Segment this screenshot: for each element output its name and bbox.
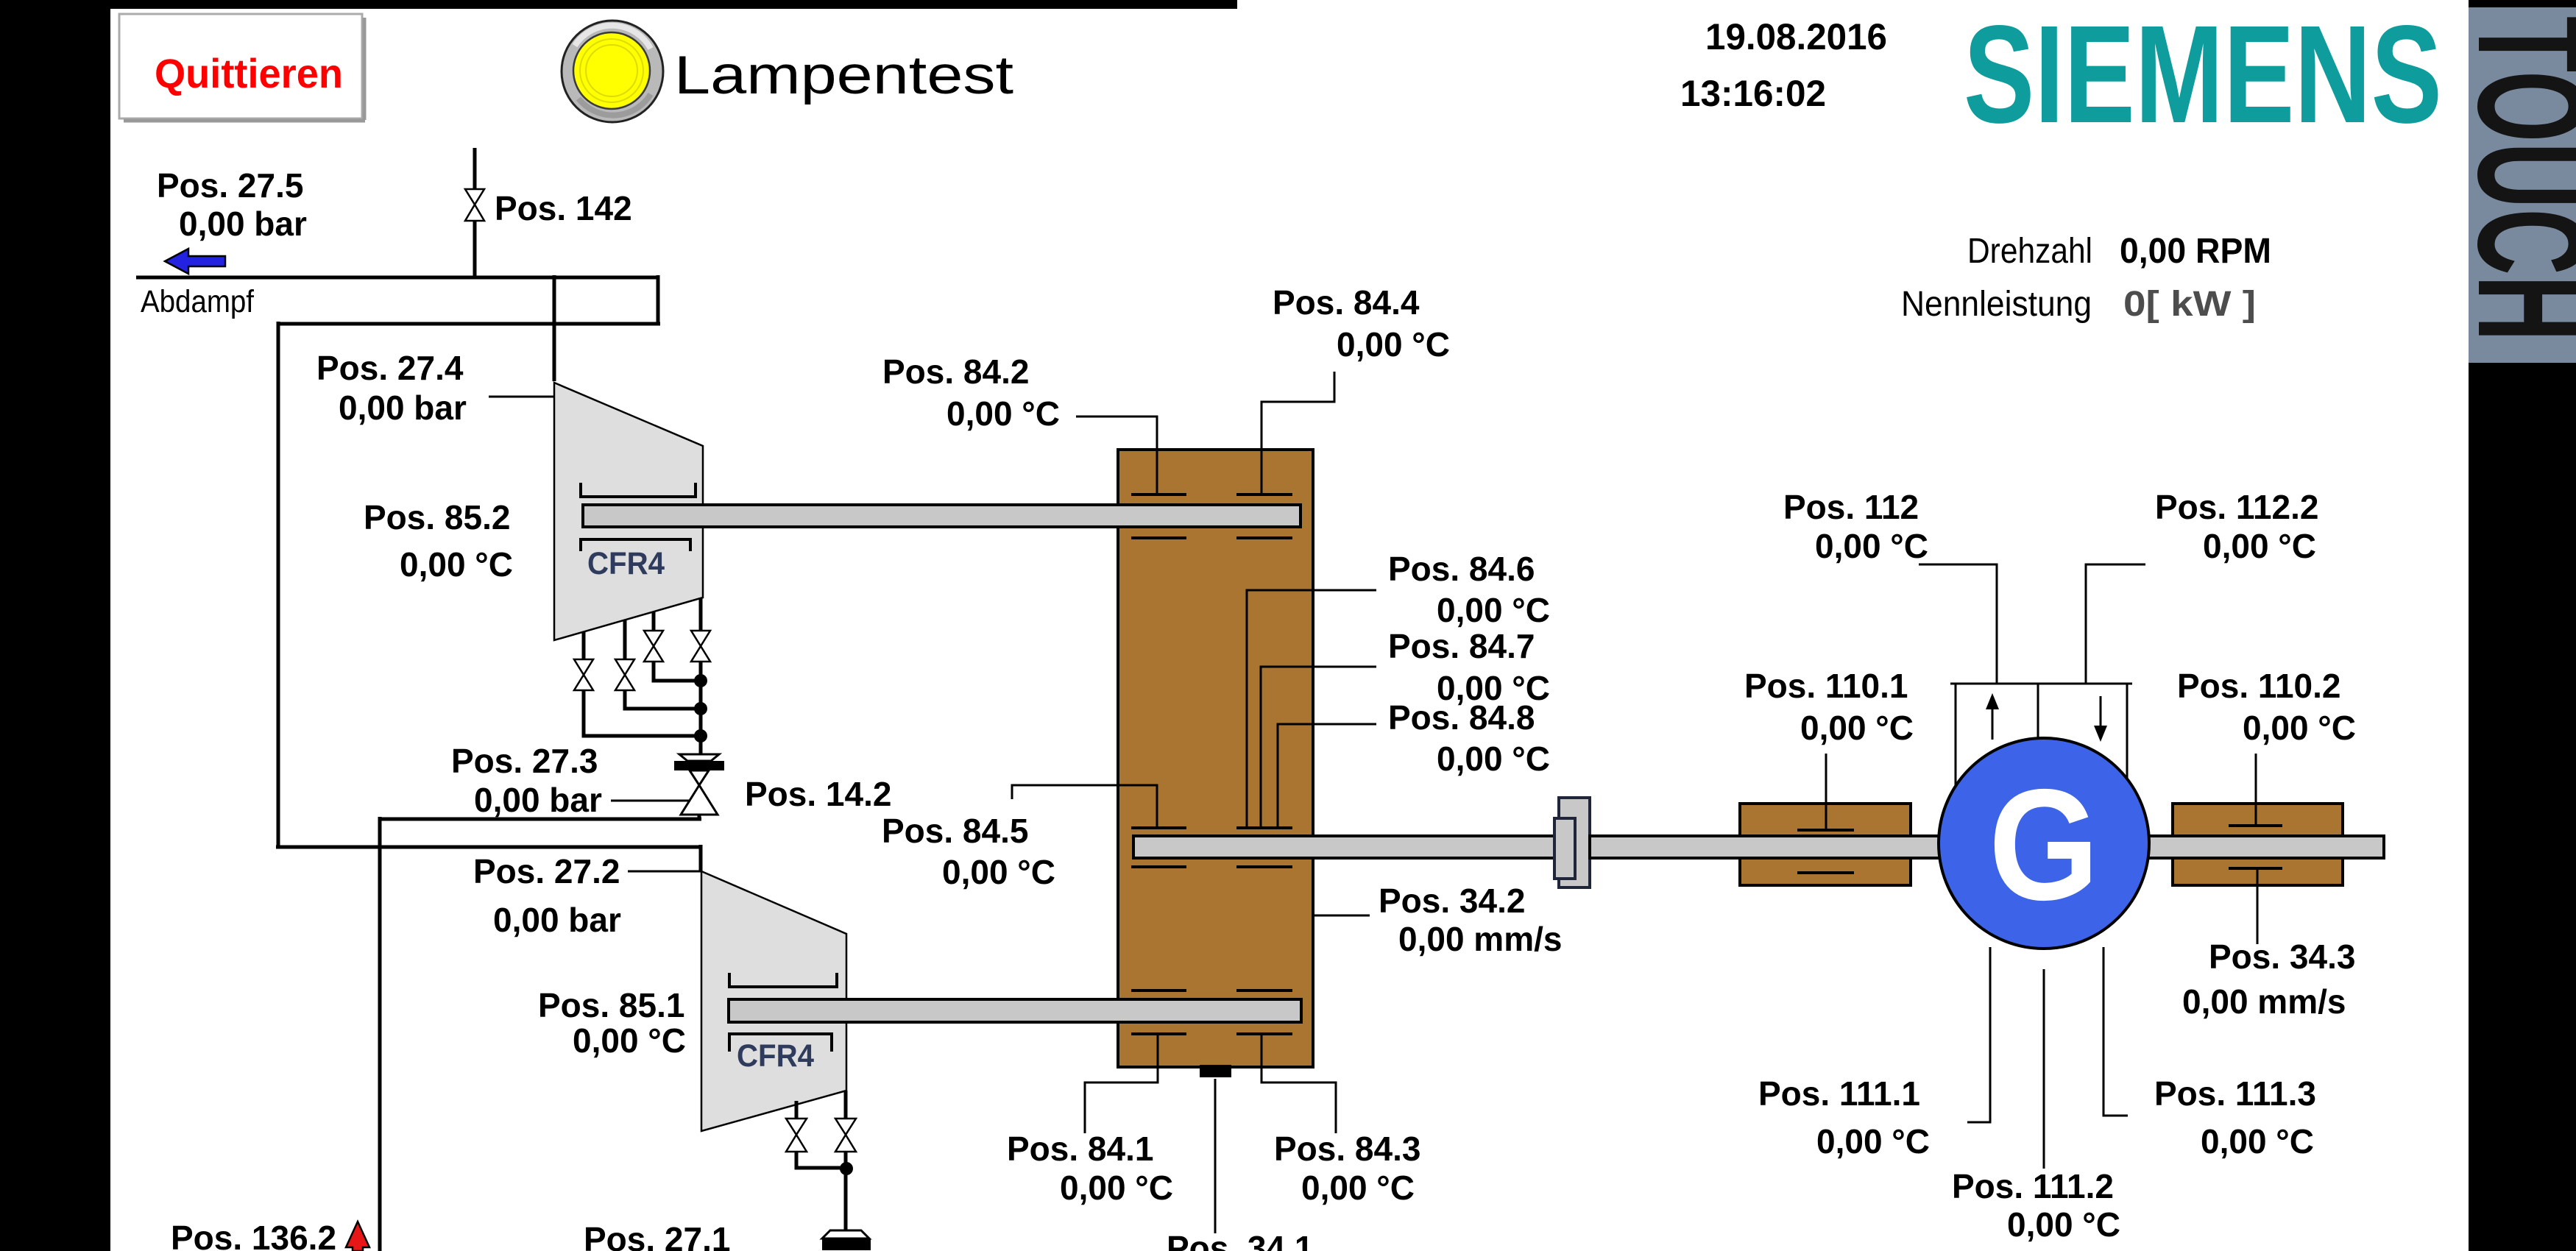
svg-text:Pos. 111.1: Pos. 111.1: [1758, 1074, 1920, 1113]
svg-text:Pos. 34.3: Pos. 34.3: [2209, 938, 2355, 976]
svg-text:Pos. 112.2: Pos. 112.2: [2155, 488, 2319, 526]
svg-text:Pos. 110.1: Pos. 110.1: [1744, 667, 1908, 705]
svg-text:Pos. 84.2: Pos. 84.2: [882, 352, 1029, 391]
svg-text:0,00 °C: 0,00 °C: [2243, 709, 2356, 747]
svg-text:0,00 °C: 0,00 °C: [2201, 1122, 2314, 1160]
svg-text:Nennleistung: Nennleistung: [1901, 285, 2092, 324]
svg-text:0,00 bar: 0,00 bar: [493, 901, 621, 939]
svg-text:Pos. 111.3: Pos. 111.3: [2154, 1074, 2316, 1113]
svg-text:0,00 °C: 0,00 °C: [1301, 1169, 1415, 1207]
svg-text:0,00 mm/s: 0,00 mm/s: [1398, 920, 1562, 958]
svg-text:0,00 °C: 0,00 °C: [946, 394, 1060, 433]
svg-text:Pos. 142: Pos. 142: [495, 189, 632, 227]
svg-text:Pos. 84.7: Pos. 84.7: [1388, 627, 1535, 665]
svg-text:Abdampf: Abdampf: [141, 284, 255, 319]
svg-text:Pos. 34.1: Pos. 34.1: [1167, 1229, 1313, 1251]
svg-text:Pos. 84.3: Pos. 84.3: [1274, 1130, 1420, 1168]
svg-text:Pos. 84.4: Pos. 84.4: [1273, 283, 1420, 322]
svg-text:CFR4: CFR4: [737, 1038, 814, 1074]
svg-text:0,00 bar: 0,00 bar: [339, 389, 467, 427]
svg-text:13:16:02: 13:16:02: [1680, 73, 1826, 114]
svg-text:G: G: [1989, 756, 2099, 933]
svg-text:0,00 bar: 0,00 bar: [179, 205, 307, 243]
svg-text:Quittieren: Quittieren: [155, 50, 343, 96]
svg-text:0,00 °C: 0,00 °C: [573, 1021, 686, 1060]
svg-text:Pos. 27.1: Pos. 27.1: [584, 1220, 730, 1251]
svg-text:Lampentest: Lampentest: [674, 46, 1013, 105]
svg-text:0,00 °C: 0,00 °C: [1800, 709, 1914, 747]
svg-text:0,00 RPM: 0,00 RPM: [2120, 232, 2271, 271]
svg-text:Pos. 84.5: Pos. 84.5: [882, 812, 1028, 850]
svg-text:Pos. 112: Pos. 112: [1783, 488, 1919, 526]
svg-text:Pos. 27.2: Pos. 27.2: [473, 852, 620, 890]
svg-text:0,00 °C: 0,00 °C: [1816, 1122, 1930, 1160]
svg-text:0,00 mm/s: 0,00 mm/s: [2182, 982, 2346, 1021]
svg-text:Pos. 111.2: Pos. 111.2: [1952, 1167, 2114, 1205]
svg-text:0,00 °C: 0,00 °C: [2007, 1205, 2120, 1244]
svg-text:Pos. 27.4: Pos. 27.4: [316, 349, 464, 387]
svg-text:Pos. 85.1: Pos. 85.1: [538, 986, 684, 1024]
svg-text:Pos. 84.8: Pos. 84.8: [1388, 698, 1535, 737]
svg-text:0,00 °C: 0,00 °C: [400, 545, 513, 584]
svg-text:0[ kW ]: 0[ kW ]: [2123, 285, 2256, 324]
svg-text:0,00 °C: 0,00 °C: [1337, 325, 1450, 364]
svg-text:Pos. 27.3: Pos. 27.3: [451, 742, 598, 780]
svg-text:Pos. 14.2: Pos. 14.2: [745, 775, 891, 813]
svg-text:0,00 °C: 0,00 °C: [1060, 1169, 1173, 1207]
svg-text:0,00 °C: 0,00 °C: [1437, 740, 1550, 778]
svg-text:Drehzahl: Drehzahl: [1967, 232, 2092, 271]
svg-text:Pos. 27.5: Pos. 27.5: [157, 166, 303, 205]
svg-text:0,00 °C: 0,00 °C: [1815, 527, 1928, 565]
svg-text:0,00 °C: 0,00 °C: [942, 853, 1055, 891]
svg-text:Pos. 136.2: Pos. 136.2: [171, 1219, 336, 1251]
svg-text:Pos. 84.1: Pos. 84.1: [1007, 1130, 1153, 1168]
svg-text:Pos. 84.6: Pos. 84.6: [1388, 550, 1535, 588]
svg-text:TOUCH: TOUCH: [2446, 16, 2576, 341]
svg-text:Pos. 34.2: Pos. 34.2: [1379, 882, 1525, 920]
svg-text:Pos. 110.2: Pos. 110.2: [2177, 667, 2341, 705]
svg-text:19.08.2016: 19.08.2016: [1705, 16, 1887, 57]
svg-text:CFR4: CFR4: [587, 546, 665, 581]
svg-text:0,00 bar: 0,00 bar: [474, 781, 602, 819]
svg-text:0,00 °C: 0,00 °C: [1437, 591, 1550, 629]
svg-text:Pos. 85.2: Pos. 85.2: [364, 498, 510, 536]
svg-text:0,00 °C: 0,00 °C: [2203, 527, 2316, 565]
svg-text:SIEMENS: SIEMENS: [1964, 0, 2442, 152]
